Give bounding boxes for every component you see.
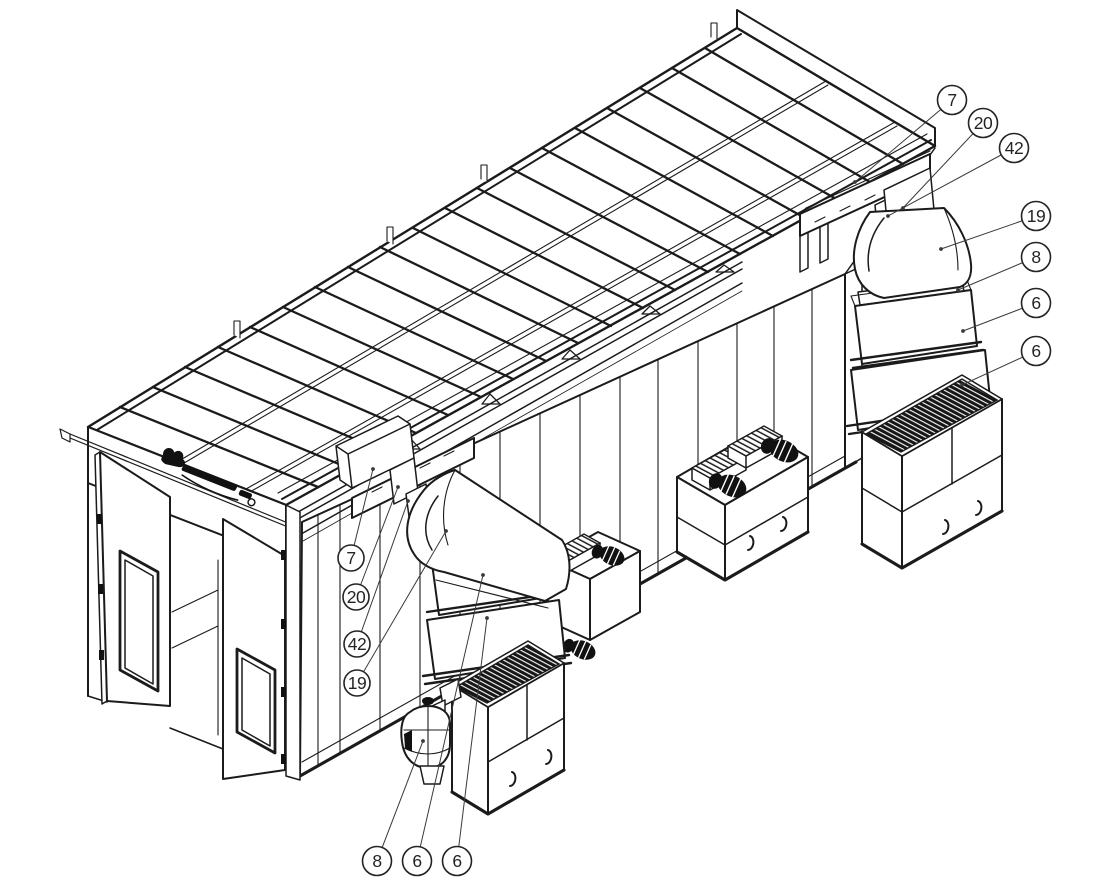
svg-text:42: 42 xyxy=(348,634,366,654)
svg-text:42: 42 xyxy=(1005,138,1023,158)
svg-text:6: 6 xyxy=(1031,341,1040,361)
right-corner-post xyxy=(286,505,300,780)
isometric-technical-drawing: 7 20 42 19 8 6 6 xyxy=(0,0,1119,887)
svg-text:19: 19 xyxy=(348,673,366,693)
svg-text:6: 6 xyxy=(1031,293,1040,313)
svg-text:7: 7 xyxy=(947,90,956,110)
right-exhaust-tower xyxy=(847,208,1002,568)
curved-duct-elbow-19 xyxy=(854,208,971,298)
svg-text:6: 6 xyxy=(452,851,461,871)
svg-text:20: 20 xyxy=(347,587,366,607)
svg-text:8: 8 xyxy=(1031,247,1040,267)
svg-text:19: 19 xyxy=(1027,206,1045,226)
svg-text:6: 6 xyxy=(412,851,421,871)
door-leaf-left xyxy=(95,452,170,706)
callout-balloon-6-right-upper: 6 xyxy=(961,289,1050,333)
rail-end-bracket xyxy=(60,429,70,442)
door-leaf-right xyxy=(223,519,287,779)
svg-text:20: 20 xyxy=(974,113,993,133)
svg-text:7: 7 xyxy=(346,548,355,568)
svg-text:8: 8 xyxy=(372,851,381,871)
interior-lines xyxy=(172,560,218,735)
drawing-canvas: 7 20 42 19 8 6 6 xyxy=(0,0,1119,887)
